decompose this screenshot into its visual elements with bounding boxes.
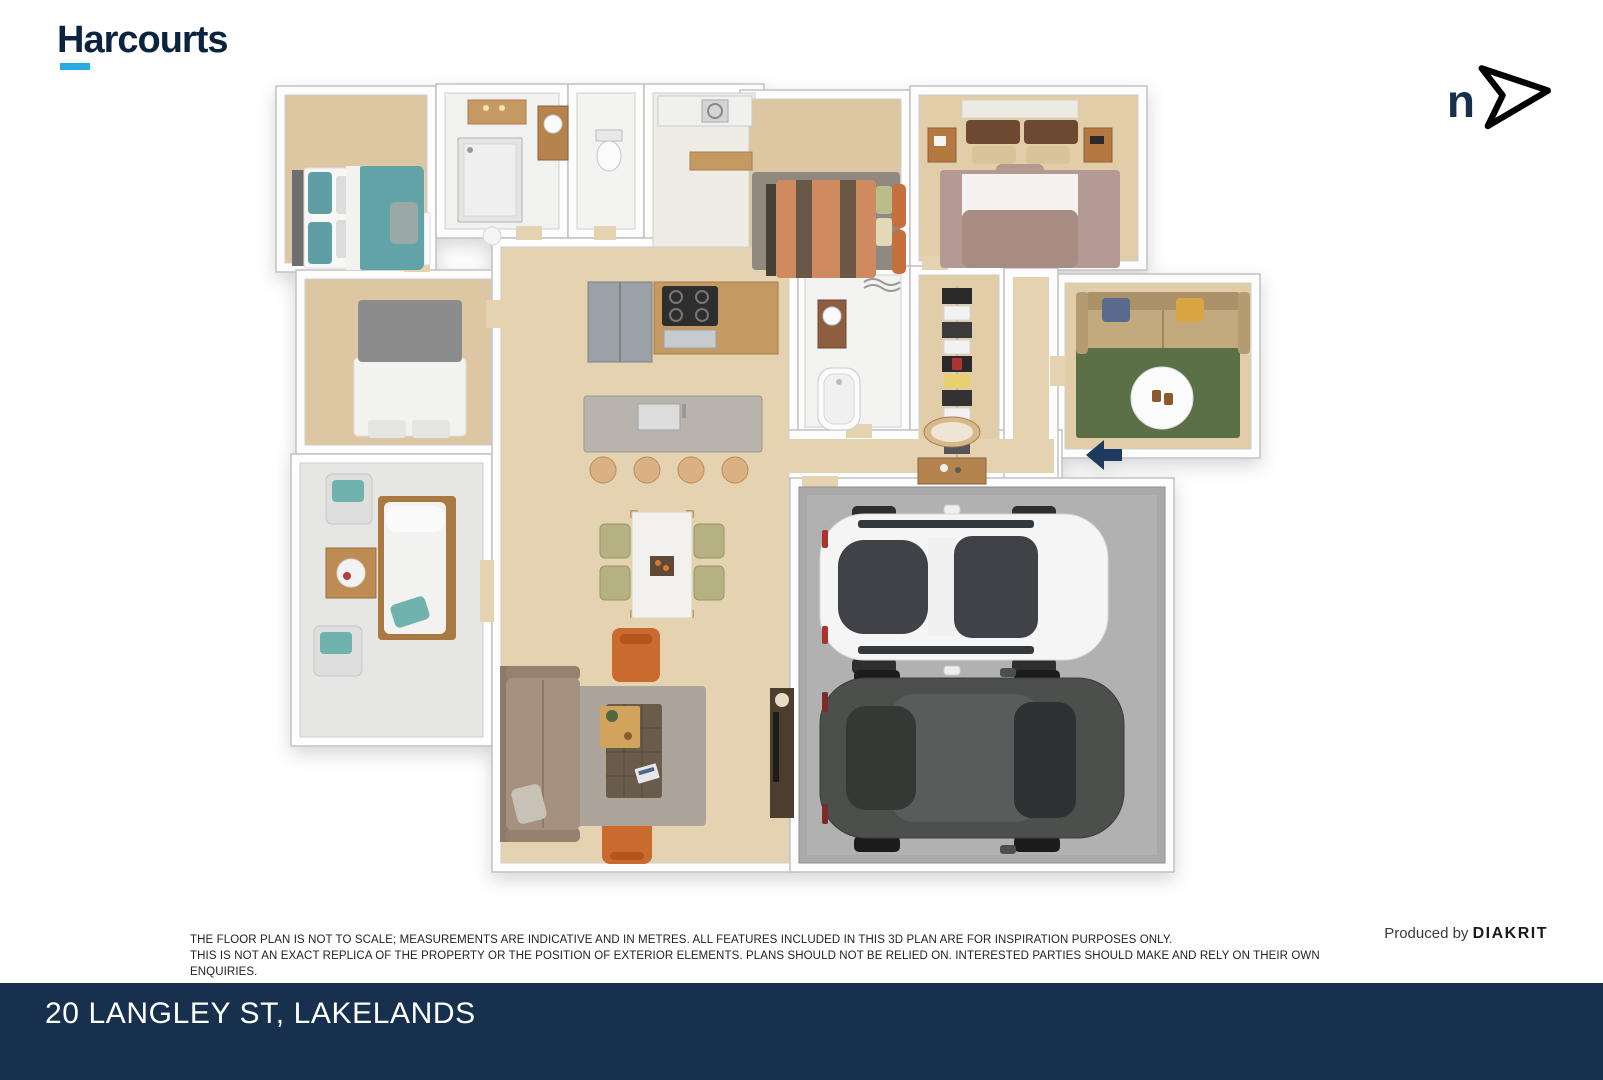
bedroom-1 (292, 166, 430, 270)
disclaimer-line-1: THE FLOOR PLAN IS NOT TO SCALE; MEASUREM… (190, 932, 1330, 948)
bedroom-3 (354, 300, 466, 438)
bedroom-2 (752, 172, 906, 278)
dark-car (820, 668, 1124, 854)
white-car (820, 505, 1108, 675)
address-bar: 20 LANGLEY ST, LAKELANDS (0, 983, 1603, 1080)
credit-producer: DIAKRIT (1473, 925, 1548, 942)
floorplan-svg (0, 0, 1603, 1080)
credit-prefix: Produced by (1384, 925, 1468, 942)
page: Harcourts n (0, 0, 1603, 1080)
floorplan-3d (0, 0, 1603, 1080)
plan-body (276, 84, 1260, 872)
kitchen (588, 282, 778, 362)
wc (596, 130, 622, 171)
garage (799, 487, 1165, 863)
lounge-room (1076, 292, 1250, 438)
property-address: 20 LANGLEY ST, LAKELANDS (0, 983, 1603, 1031)
disclaimer: THE FLOOR PLAN IS NOT TO SCALE; MEASUREM… (190, 932, 1330, 980)
producer-credit: Produced by DIAKRIT (1384, 925, 1548, 943)
disclaimer-line-2: THIS IS NOT AN EXACT REPLICA OF THE PROP… (190, 948, 1330, 980)
